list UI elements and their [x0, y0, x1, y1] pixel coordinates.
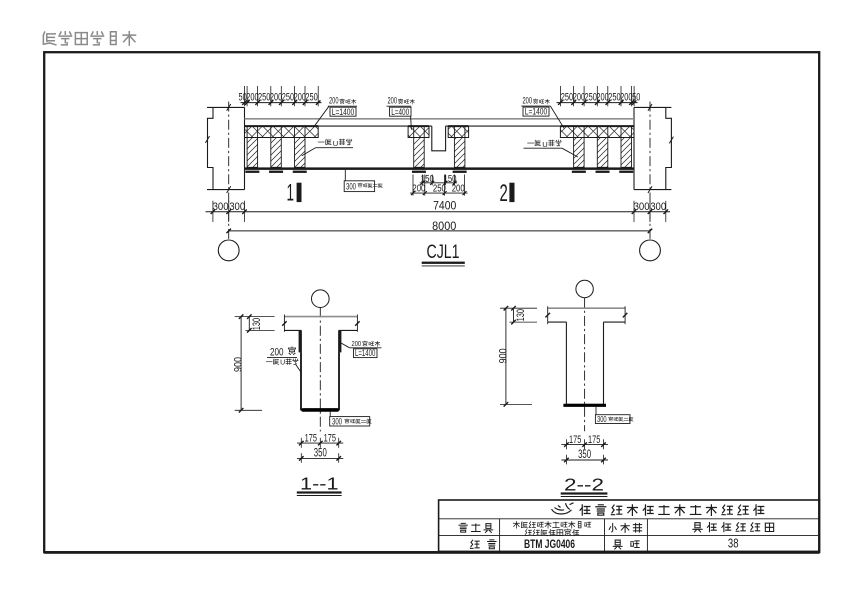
- svg-text:250: 250: [433, 183, 446, 194]
- svg-text:8000: 8000: [432, 219, 456, 233]
- svg-text:200: 200: [452, 183, 465, 194]
- svg-text:300: 300: [650, 201, 666, 213]
- svg-text:200: 200: [573, 92, 585, 104]
- svg-text:7400: 7400: [433, 198, 456, 212]
- svg-text:200: 200: [596, 92, 608, 104]
- svg-text:200: 200: [352, 341, 362, 348]
- svg-text:1: 1: [287, 180, 295, 207]
- svg-text:200: 200: [246, 92, 258, 104]
- svg-text:L=1400: L=1400: [332, 107, 355, 117]
- svg-text:U: U: [333, 139, 338, 148]
- svg-text:L=1400: L=1400: [525, 107, 548, 117]
- svg-text:1--1: 1--1: [300, 473, 339, 493]
- svg-text:130: 130: [515, 309, 527, 321]
- svg-text:CJL1: CJL1: [427, 242, 460, 263]
- svg-text:300: 300: [229, 201, 245, 213]
- svg-text:300: 300: [597, 414, 607, 424]
- svg-text:200: 200: [412, 183, 425, 194]
- svg-text:300: 300: [346, 181, 356, 191]
- svg-text:250: 250: [305, 92, 317, 104]
- svg-text:BTM JG0406: BTM JG0406: [524, 537, 575, 551]
- svg-text:900: 900: [233, 357, 245, 372]
- svg-text:200: 200: [270, 347, 284, 359]
- svg-text:200: 200: [329, 96, 339, 106]
- svg-text:2--2: 2--2: [564, 475, 604, 495]
- svg-text:900: 900: [497, 348, 509, 363]
- svg-text:200: 200: [523, 96, 533, 106]
- svg-text:200: 200: [270, 92, 282, 104]
- svg-text:U: U: [280, 359, 285, 366]
- svg-text:250: 250: [585, 92, 597, 104]
- svg-text:200: 200: [294, 92, 306, 104]
- svg-text:250: 250: [608, 92, 620, 104]
- svg-text:250: 250: [258, 92, 270, 104]
- svg-text:350: 350: [314, 446, 327, 459]
- svg-text:300: 300: [213, 201, 229, 213]
- svg-text:200: 200: [620, 92, 632, 104]
- svg-text:250: 250: [282, 92, 294, 104]
- svg-text:U: U: [542, 140, 547, 149]
- svg-text:250: 250: [561, 92, 573, 104]
- svg-text:300: 300: [332, 416, 342, 426]
- svg-text:2: 2: [500, 180, 508, 207]
- svg-text:38: 38: [728, 537, 739, 551]
- svg-text:175: 175: [588, 434, 600, 446]
- svg-text:L=400: L=400: [391, 107, 409, 117]
- svg-text:50: 50: [632, 92, 640, 104]
- svg-text:175: 175: [324, 432, 336, 444]
- svg-text:L=1400: L=1400: [355, 348, 376, 358]
- svg-text:175: 175: [569, 434, 581, 446]
- svg-text:130: 130: [251, 318, 263, 330]
- svg-text:350: 350: [578, 448, 591, 461]
- svg-text:300: 300: [634, 201, 650, 213]
- svg-text:200: 200: [388, 96, 398, 106]
- svg-text:175: 175: [305, 432, 317, 444]
